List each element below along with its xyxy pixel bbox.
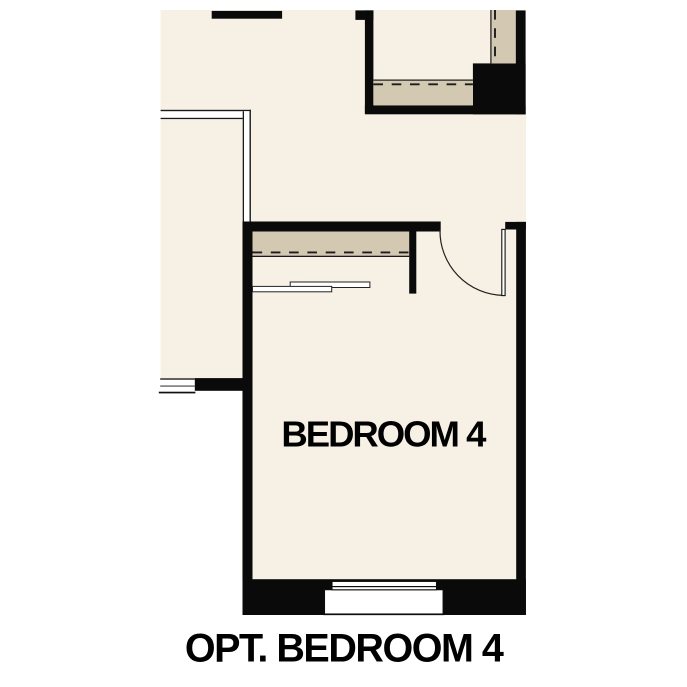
svg-text:BEDROOM 4: BEDROOM 4 — [281, 414, 487, 455]
svg-text:OPT. BEDROOM 4: OPT. BEDROOM 4 — [185, 626, 504, 670]
